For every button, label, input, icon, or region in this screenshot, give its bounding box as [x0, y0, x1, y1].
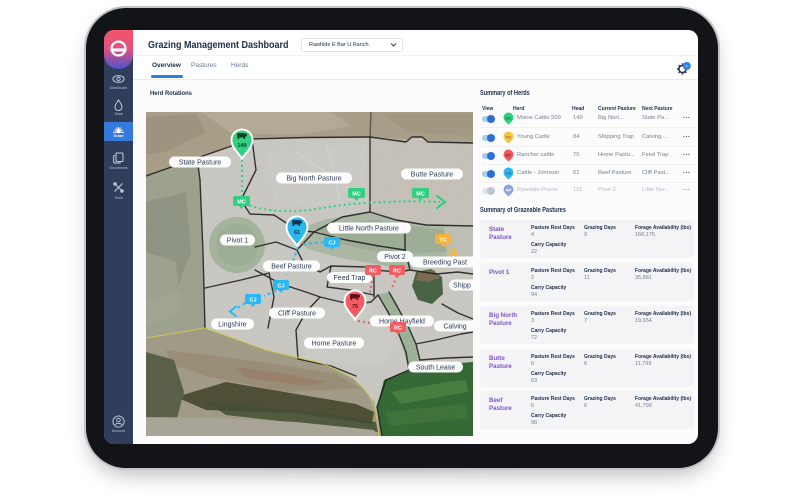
svg-text:MC: MC — [505, 115, 511, 120]
svg-text:Home Pasture: Home Pasture — [312, 341, 357, 348]
svg-text:Breeding Past: Breeding Past — [423, 260, 467, 267]
svg-text:YC: YC — [439, 238, 447, 244]
svg-text:CJ: CJ — [277, 284, 284, 290]
svg-text:Big North Pasture: Big North Pasture — [286, 176, 341, 183]
svg-text:61: 61 — [294, 230, 300, 236]
svg-text:Calving: Calving — [443, 324, 466, 331]
svg-text:149: 149 — [237, 143, 246, 149]
svg-text:RC: RC — [393, 269, 401, 275]
svg-text:75: 75 — [352, 304, 358, 310]
svg-text:CJ: CJ — [249, 298, 256, 304]
svg-text:RC: RC — [506, 152, 512, 157]
svg-text:State Pasture: State Pasture — [179, 160, 222, 167]
svg-text:MC: MC — [352, 192, 361, 198]
svg-text:Little North Pasture: Little North Pasture — [339, 226, 399, 233]
svg-text:RC: RC — [394, 326, 402, 332]
svg-text:CJ: CJ — [506, 170, 511, 175]
svg-text:YC: YC — [506, 134, 512, 139]
svg-text:Pivot 2: Pivot 2 — [384, 254, 406, 261]
svg-text:Beef Pasture: Beef Pasture — [271, 264, 312, 271]
svg-text:Pivot 1: Pivot 1 — [227, 238, 249, 245]
svg-text:Feed Trap: Feed Trap — [334, 275, 366, 282]
svg-text:Shipp: Shipp — [453, 283, 471, 290]
svg-text:Butte Pasture: Butte Pasture — [411, 172, 454, 179]
svg-text:South Lease: South Lease — [416, 365, 455, 372]
svg-text:Lingshire: Lingshire — [218, 322, 247, 329]
svg-text:RC: RC — [369, 269, 377, 275]
svg-text:CJ: CJ — [328, 241, 335, 247]
svg-text:RP: RP — [506, 187, 512, 192]
svg-text:Cliff Pasture: Cliff Pasture — [278, 311, 316, 318]
svg-text:MC: MC — [416, 192, 425, 198]
svg-text:MC: MC — [237, 200, 246, 206]
